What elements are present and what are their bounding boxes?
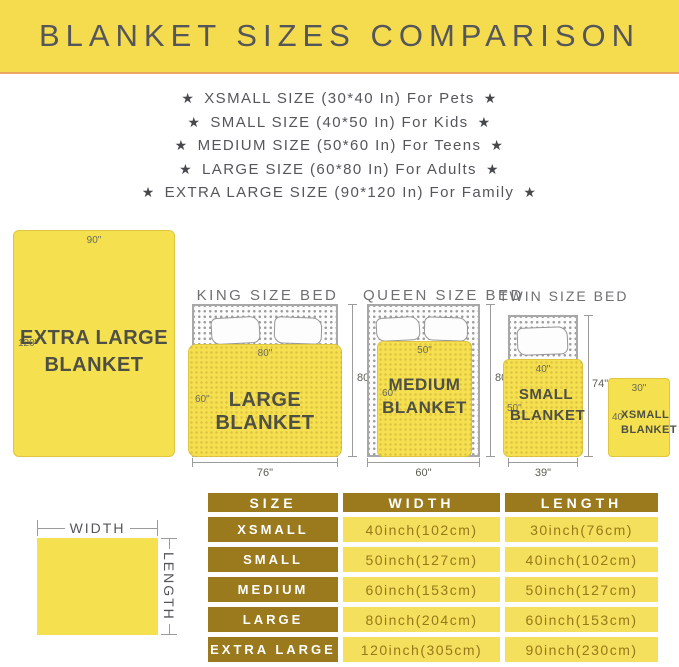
pillow [274,316,323,345]
dimension-line [169,624,170,634]
king-width-dim: 76" [192,467,338,479]
pillow [375,316,420,342]
table-cell-length: 30inch(76cm) [505,517,658,542]
list-item: ★EXTRA LARGE SIZE (90*120 In) For Family… [0,181,679,205]
width-label: WIDTH [65,520,131,536]
column-header-size: SIZE [208,493,338,512]
pillow [424,316,469,342]
small-blanket-label: SMALL BLANKET [510,384,582,426]
length-dimension-arrow: LENGTH [161,538,177,635]
small-blanket-diagram: 40" 50" SMALL BLANKET [503,359,583,457]
pillow [210,316,260,346]
star-icon: ★ [484,87,498,110]
legend-blanket-swatch [37,538,158,635]
table-cell-size: EXTRA LARGE [208,637,338,662]
small-width-dim: 40" [504,364,582,375]
column-header-width: WIDTH [343,493,500,512]
dimension-line [38,528,65,529]
list-item: ★MEDIUM SIZE (50*60 In) For Teens★ [0,134,679,158]
twin-height-dim: 74" [592,378,608,390]
table-cell-width: 120inch(305cm) [343,637,500,662]
xsmall-blanket-label: XSMALL BLANKET [621,408,668,437]
table-cell-width: 80inch(204cm) [343,607,500,632]
pillow [517,326,569,356]
large-blanket-diagram: 80" 60" LARGE BLANKET [188,344,342,457]
star-icon: ★ [486,158,500,181]
medium-width-dim: 50" [378,345,471,356]
table-cell-length: 40inch(102cm) [505,547,658,572]
width-dimension-arrow: WIDTH [37,520,158,536]
xsmall-width-dim: 30" [609,383,669,394]
table-cell-width: 60inch(153cm) [343,577,500,602]
star-icon: ★ [523,181,537,204]
table-cell-size: MEDIUM [208,577,338,602]
size-list-text: LARGE SIZE (60*80 In) For Adults [202,161,477,178]
king-bed-title: KING SIZE BED [190,287,345,304]
size-list-text: XSMALL SIZE (30*40 In) For Pets [204,90,474,107]
table-cell-width: 40inch(102cm) [343,517,500,542]
blanket-sizes-infographic: BLANKET SIZES COMPARISON ★XSMALL SIZE (3… [0,0,679,667]
list-item: ★SMALL SIZE (40*50 In) For Kids★ [0,111,679,135]
table-cell-size: XSMALL [208,517,338,542]
xsmall-blanket-diagram: 30" 40" XSMALL BLANKET [608,378,670,457]
size-summary-list: ★XSMALL SIZE (30*40 In) For Pets★ ★SMALL… [0,87,679,205]
star-icon: ★ [175,134,189,157]
dimension-line [192,458,338,467]
list-item: ★LARGE SIZE (60*80 In) For Adults★ [0,158,679,182]
size-list-text: MEDIUM SIZE (50*60 In) For Teens [198,137,482,154]
page-title: BLANKET SIZES COMPARISON [39,18,640,54]
title-banner: BLANKET SIZES COMPARISON [0,0,679,74]
large-blanket-label: LARGE BLANKET [189,389,341,435]
medium-blanket-diagram: 50" 60" MEDIUM BLANKET [377,341,472,457]
table-cell-size: LARGE [208,607,338,632]
size-list-text: SMALL SIZE (40*50 In) For Kids [210,114,468,131]
dimension-line [130,528,157,529]
dimension-line [508,458,578,467]
table-cell-size: SMALL [208,547,338,572]
xl-width-dim: 90" [14,235,174,246]
table-cell-length: 50inch(127cm) [505,577,658,602]
dimension-line [348,304,357,457]
star-icon: ★ [478,111,492,134]
column-header-length: LENGTH [505,493,658,512]
size-list-text: EXTRA LARGE SIZE (90*120 In) For Family [165,184,515,201]
size-comparison-table: SIZE WIDTH LENGTH XSMALL 40inch(102cm) 3… [208,493,658,662]
table-cell-width: 50inch(127cm) [343,547,500,572]
length-label: LENGTH [161,549,177,624]
xl-blanket-label: EXTRA LARGE BLANKET [14,325,174,379]
twin-bed-title: TWIN SIZE BED [499,288,595,304]
table-cell-length: 60inch(153cm) [505,607,658,632]
star-icon: ★ [187,111,201,134]
table-cell-length: 90inch(230cm) [505,637,658,662]
extra-large-blanket-diagram: 90" 120" EXTRA LARGE BLANKET [13,230,175,457]
medium-blanket-label: MEDIUM BLANKET [378,373,471,419]
list-item: ★XSMALL SIZE (30*40 In) For Pets★ [0,87,679,111]
queen-width-dim: 60" [367,467,480,479]
star-icon: ★ [490,134,504,157]
twin-width-dim: 39" [508,467,578,479]
dimension-line [367,458,480,467]
dimension-line [486,304,495,457]
large-width-dim: 80" [189,348,341,359]
queen-bed-title: QUEEN SIZE BED [363,287,483,304]
star-icon: ★ [142,181,156,204]
dimension-line [169,539,170,549]
star-icon: ★ [181,87,195,110]
star-icon: ★ [179,158,193,181]
